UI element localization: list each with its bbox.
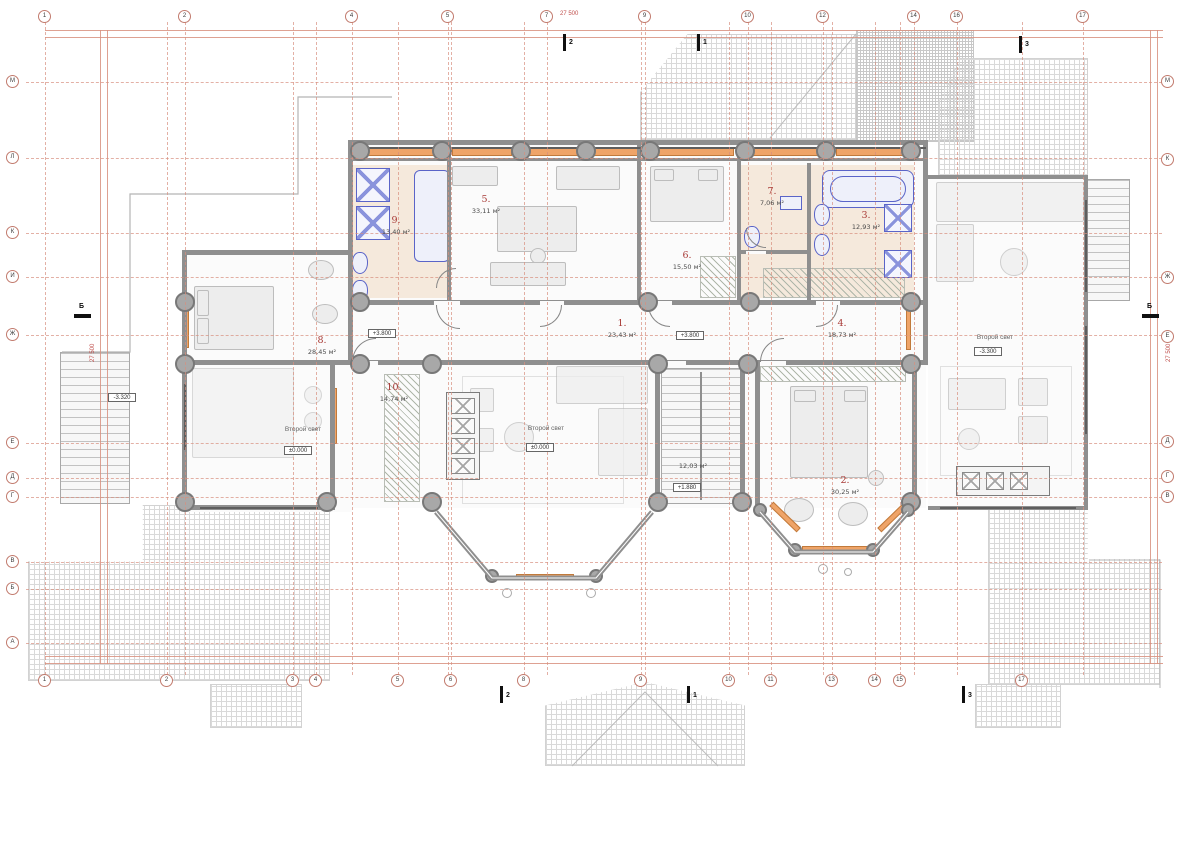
room-area: 30,25 м² bbox=[813, 488, 877, 496]
axis-bubble-top: 14 bbox=[907, 10, 920, 23]
section-marker-bar bbox=[74, 314, 91, 318]
axis-bubble-bottom: 9 bbox=[634, 674, 647, 687]
grid-line-vertical bbox=[771, 22, 772, 675]
plan-overlay-lines bbox=[0, 0, 1200, 847]
axis-bubble-top: 10 bbox=[741, 10, 754, 23]
axis-bubble-bottom: 2 bbox=[160, 674, 173, 687]
room-number: 9. bbox=[381, 215, 411, 226]
grid-line-vertical bbox=[729, 22, 730, 675]
section-marker-label: 2 bbox=[569, 39, 579, 48]
section-marker-label: 2 bbox=[506, 692, 516, 701]
grid-line-horizontal bbox=[26, 589, 1162, 590]
room-number: 4. bbox=[827, 318, 857, 329]
axis-bubble-top: 2 bbox=[178, 10, 191, 23]
axis-bubble-right: М bbox=[1161, 75, 1174, 88]
room-area: 15,50 м² bbox=[655, 263, 719, 271]
axis-bubble-top: 7 bbox=[540, 10, 553, 23]
grid-line-vertical bbox=[1083, 22, 1084, 675]
dimension-right: 27 500 bbox=[1166, 322, 1173, 362]
section-marker-label: 3 bbox=[968, 692, 978, 701]
axis-bubble-bottom: 8 bbox=[517, 674, 530, 687]
bay-window-right bbox=[760, 512, 908, 552]
axis-bubble-bottom: 11 bbox=[764, 674, 777, 687]
grid-line-vertical bbox=[832, 22, 833, 675]
axis-bubble-bottom: 13 bbox=[825, 674, 838, 687]
elevation-mark: +3.800 bbox=[676, 331, 704, 340]
room-area: 28,45 м² bbox=[290, 348, 354, 356]
axis-bubble-right: Д bbox=[1161, 435, 1174, 448]
elevation-mark: ±0.000 bbox=[526, 443, 554, 452]
grid-line-horizontal bbox=[26, 497, 1162, 498]
grid-line-vertical bbox=[641, 22, 642, 675]
section-marker-bar bbox=[687, 686, 690, 703]
grid-line-horizontal bbox=[26, 233, 1162, 234]
grid-line-vertical bbox=[448, 22, 449, 675]
room-area: 7,06 м² bbox=[740, 199, 804, 207]
datum-line bbox=[100, 30, 101, 664]
axis-bubble-top: 1 bbox=[38, 10, 51, 23]
grid-line-vertical bbox=[900, 22, 901, 675]
elevation-mark: ±0.000 bbox=[284, 446, 312, 455]
room-area: 18,73 м² bbox=[810, 331, 874, 339]
axis-bubble-left: К bbox=[6, 226, 19, 239]
second-light-label: Второй свет bbox=[963, 334, 1027, 342]
axis-bubble-right: В bbox=[1161, 490, 1174, 503]
axis-bubble-right: Г bbox=[1161, 470, 1174, 483]
axis-bubble-left: Д bbox=[6, 471, 19, 484]
elevation-mark: +1.880 bbox=[673, 483, 701, 492]
elevation-mark: -3.320 bbox=[108, 393, 136, 402]
room-number: 5. bbox=[471, 194, 501, 205]
datum-line bbox=[1150, 30, 1151, 664]
section-marker-label: 1 bbox=[703, 39, 713, 48]
grid-line-vertical bbox=[45, 22, 46, 675]
section-marker-label: Б bbox=[79, 303, 89, 312]
axis-bubble-left: Г bbox=[6, 490, 19, 503]
axis-bubble-left: Ж bbox=[6, 328, 19, 341]
roof-gable-line bbox=[572, 692, 718, 766]
second-light-label: Второй свет bbox=[271, 426, 335, 434]
grid-line-vertical bbox=[914, 22, 915, 675]
grid-line-horizontal bbox=[26, 478, 1162, 479]
lower-roof-contour bbox=[62, 97, 392, 352]
roof-hip-line bbox=[770, 34, 856, 138]
grid-line-horizontal bbox=[26, 562, 1162, 563]
grid-line-vertical bbox=[547, 22, 548, 675]
room-number: 1. bbox=[607, 318, 637, 329]
dimension-left: 27 500 bbox=[90, 322, 97, 362]
room-area: 14,74 м² bbox=[362, 395, 426, 403]
room-area: 13,40 м² bbox=[364, 228, 428, 236]
dimension-top: 27 500 bbox=[560, 11, 600, 18]
grid-line-vertical bbox=[524, 22, 525, 675]
axis-bubble-left: М bbox=[6, 75, 19, 88]
axis-bubble-bottom: 3 bbox=[286, 674, 299, 687]
room-number: 8. bbox=[307, 335, 337, 346]
axis-bubble-top: 9 bbox=[638, 10, 651, 23]
axis-bubble-bottom: 17 bbox=[1015, 674, 1028, 687]
section-marker-label: 1 bbox=[693, 692, 703, 701]
axis-bubble-top: 5 bbox=[441, 10, 454, 23]
grid-line-horizontal bbox=[26, 443, 1162, 444]
grid-line-vertical bbox=[167, 22, 168, 675]
axis-bubble-top: 4 bbox=[345, 10, 358, 23]
room-number: 10. bbox=[379, 382, 409, 393]
axis-bubble-top: 16 bbox=[950, 10, 963, 23]
grid-line-vertical bbox=[185, 22, 186, 675]
axis-bubble-left: Е bbox=[6, 436, 19, 449]
axis-bubble-right: К bbox=[1161, 153, 1174, 166]
grid-line-horizontal bbox=[26, 277, 1162, 278]
grid-line-vertical bbox=[645, 22, 646, 675]
section-marker-label: 3 bbox=[1025, 41, 1035, 50]
grid-line-vertical bbox=[451, 22, 452, 675]
axis-bubble-left: Б bbox=[6, 582, 19, 595]
grid-line-horizontal bbox=[26, 82, 1162, 83]
datum-line bbox=[107, 30, 108, 664]
section-marker-label: Б bbox=[1147, 303, 1157, 312]
axis-bubble-bottom: 15 bbox=[893, 674, 906, 687]
section-marker-bar bbox=[1142, 314, 1159, 318]
bay-window-center bbox=[436, 512, 652, 578]
grid-line-vertical bbox=[957, 22, 958, 675]
datum-line bbox=[45, 663, 1163, 664]
grid-line-horizontal bbox=[26, 643, 1162, 644]
axis-bubble-left: Л bbox=[6, 151, 19, 164]
section-marker-bar bbox=[962, 686, 965, 703]
grid-line-vertical bbox=[1022, 22, 1023, 675]
axis-bubble-right: Ж bbox=[1161, 271, 1174, 284]
axis-bubble-bottom: 4 bbox=[309, 674, 322, 687]
grid-line-horizontal bbox=[26, 158, 1162, 159]
grid-line-vertical bbox=[875, 22, 876, 675]
bay-window-right-glass bbox=[760, 512, 908, 552]
stair-area-label: 12,03 м² bbox=[663, 462, 723, 470]
second-light-label: Второй свет bbox=[514, 425, 578, 433]
grid-line-vertical bbox=[748, 22, 749, 675]
axis-bubble-left: А bbox=[6, 636, 19, 649]
section-marker-bar bbox=[697, 34, 700, 51]
elevation-mark: +3.800 bbox=[368, 329, 396, 338]
elevation-mark: -3.300 bbox=[974, 347, 1002, 356]
axis-bubble-left: И bbox=[6, 270, 19, 283]
grid-line-vertical bbox=[398, 22, 399, 675]
axis-bubble-left: В bbox=[6, 555, 19, 568]
floor-plan-canvas: 124579101214161712345689101113141517МЛКИ… bbox=[0, 0, 1200, 847]
room-area: 12,93 м² bbox=[834, 223, 898, 231]
axis-bubble-bottom: 10 bbox=[722, 674, 735, 687]
section-marker-bar bbox=[1019, 36, 1022, 53]
datum-line bbox=[1157, 30, 1158, 664]
datum-line bbox=[45, 37, 1163, 38]
room-number: 6. bbox=[672, 250, 702, 261]
grid-line-vertical bbox=[823, 22, 824, 675]
axis-bubble-top: 12 bbox=[816, 10, 829, 23]
datum-line bbox=[45, 656, 1163, 657]
axis-bubble-bottom: 1 bbox=[38, 674, 51, 687]
bay-window-center-glass bbox=[436, 512, 652, 578]
room-number: 3. bbox=[851, 210, 881, 221]
room-number: 2. bbox=[830, 475, 860, 486]
section-marker-bar bbox=[500, 686, 503, 703]
axis-bubble-bottom: 14 bbox=[868, 674, 881, 687]
datum-line bbox=[45, 30, 1163, 31]
section-marker-bar bbox=[563, 34, 566, 51]
axis-bubble-bottom: 5 bbox=[391, 674, 404, 687]
room-area: 33,11 м² bbox=[454, 207, 518, 215]
axis-bubble-bottom: 6 bbox=[444, 674, 457, 687]
room-area: 23,43 м² bbox=[590, 331, 654, 339]
room-number: 7. bbox=[757, 186, 787, 197]
axis-bubble-top: 17 bbox=[1076, 10, 1089, 23]
